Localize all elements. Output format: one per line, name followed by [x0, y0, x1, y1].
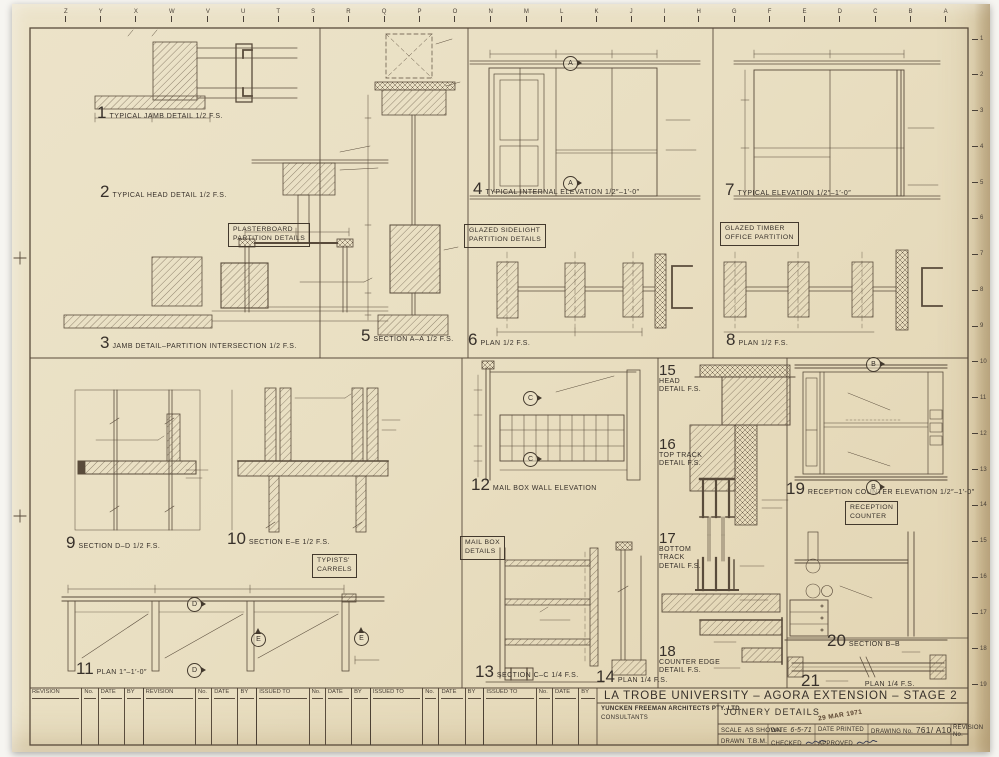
detail-number: 1	[97, 106, 106, 120]
checked-label: CHECKED	[771, 741, 802, 747]
grid-number: 3	[972, 108, 987, 114]
grid-number: 19	[972, 682, 987, 688]
scale-label: SCALE	[721, 728, 742, 734]
detail-label-15: 15HEAD DETAIL F.S.	[659, 364, 705, 395]
revision-col-header: ISSUED TO	[373, 689, 420, 699]
detail-label-2: 2TYPICAL HEAD DETAIL 1/2 F.S.	[100, 185, 227, 199]
group-box-reception: RECEPTIONCOUNTER	[845, 501, 898, 525]
group-box-line: TYPISTS'	[317, 557, 352, 566]
detail-number: 6	[468, 333, 477, 347]
grid-letter: A	[944, 9, 948, 22]
revision-no-label: REVISION No.	[953, 725, 983, 738]
group-box-sidelight: GLAZED SIDELIGHTPARTITION DETAILS	[464, 224, 546, 248]
group-box-line: GLAZED TIMBER	[725, 225, 794, 234]
revision-group: REVISION No. DATE BY	[144, 688, 258, 745]
revision-strip: REVISION No. DATE BY REVISION No. DATE B…	[30, 688, 597, 745]
detail-number: 12	[471, 478, 490, 492]
grid-letter: Q	[382, 9, 387, 22]
revision-col-header: No.	[84, 689, 95, 699]
detail-number: 10	[227, 532, 246, 546]
grid-letter: J	[630, 9, 633, 22]
grid-letter: T	[276, 9, 280, 22]
detail-number: 11	[76, 662, 94, 676]
detail-title: SECTION D–D 1/2 F.S.	[78, 543, 160, 550]
grid-number: 10	[972, 359, 987, 365]
grid-number: 1	[972, 36, 987, 42]
revision-col-header: No.	[312, 689, 323, 699]
detail-title: PLAN 1″–1′-0″	[97, 669, 147, 676]
scanned-drawing-sheet: ZYXWVUTSRQPONMLKJIHGFEDCBA 1234567891011…	[0, 0, 999, 757]
section-marker-e-left: E	[251, 632, 266, 647]
group-box-timber: GLAZED TIMBEROFFICE PARTITION	[720, 222, 799, 246]
group-box-line: CARRELS	[317, 566, 352, 575]
section-marker-c-bottom: C	[523, 452, 538, 467]
approved-field: APPROVED	[818, 738, 878, 747]
grid-numbers: 12345678910111213141516171819	[972, 36, 987, 688]
grid-number: 18	[972, 646, 987, 652]
revision-col-header: DATE	[101, 689, 122, 699]
detail-number: 4	[473, 182, 482, 196]
detail-number: 3	[100, 336, 109, 350]
detail-number: 9	[66, 536, 75, 550]
section-marker-a-top: A	[563, 56, 578, 71]
detail-title: PLAN 1/4 F.S.	[865, 681, 915, 688]
grid-number: 8	[972, 287, 987, 293]
drawn-label: DRAWN	[721, 739, 744, 745]
section-marker-d-bottom: D	[187, 663, 202, 678]
detail-title: TYPICAL INTERNAL ELEVATION 1/2″–1′-0″	[485, 189, 639, 196]
revision-group: REVISION No. DATE BY	[30, 688, 144, 745]
drawn-value: T.B.M.	[747, 738, 767, 745]
issued-to-group: ISSUED TO No. DATE BY	[484, 688, 597, 745]
grid-number: 17	[972, 610, 987, 616]
detail-label-20: 20SECTION B–B	[827, 634, 900, 648]
detail-title: SECTION A–A 1/2 F.S.	[373, 336, 453, 343]
grid-number: 2	[972, 72, 987, 78]
detail-label-9: 9SECTION D–D 1/2 F.S.	[66, 536, 160, 550]
detail-label-8: 8PLAN 1/2 F.S.	[726, 333, 788, 347]
detail-number: 2	[100, 185, 109, 199]
grid-letter: L	[560, 9, 563, 22]
grid-number: 5	[972, 180, 987, 186]
group-box-line: GLAZED SIDELIGHT	[469, 227, 541, 236]
drawing-no-value: 761/ A10	[916, 726, 952, 735]
detail-label-11: 11PLAN 1″–1′-0″	[76, 662, 147, 676]
detail-title: MAIL BOX WALL ELEVATION	[493, 485, 597, 492]
detail-number: 13	[475, 665, 494, 679]
revision-col-header: ISSUED TO	[259, 689, 306, 699]
signature-scribble	[856, 738, 878, 747]
section-marker-c-top: C	[523, 391, 538, 406]
grid-number: 7	[972, 251, 987, 257]
detail-title: TYPICAL HEAD DETAIL 1/2 F.S.	[112, 192, 226, 199]
grid-letter: F	[768, 9, 772, 22]
section-marker-d-top: D	[187, 597, 202, 612]
date-printed-field: DATE PRINTED	[818, 727, 864, 733]
date-label: DATE	[771, 728, 787, 734]
grid-number: 9	[972, 323, 987, 329]
detail-title: SECTION C–C 1/4 F.S.	[497, 672, 579, 679]
grid-letter: W	[169, 9, 175, 22]
grid-letter: N	[488, 9, 492, 22]
detail-title: COUNTER EDGE DETAIL F.S.	[659, 659, 723, 676]
grid-letter: E	[802, 9, 806, 22]
grid-letter: O	[453, 9, 458, 22]
revision-col-header: REVISION	[32, 689, 79, 699]
detail-number: 18	[659, 645, 723, 658]
drawing-no-field: DRAWING No. 761/ A10	[871, 726, 952, 735]
group-box-line: PARTITION DETAILS	[469, 236, 541, 245]
revision-col-header: DATE	[441, 689, 462, 699]
grid-letter: H	[696, 9, 700, 22]
grid-letter: C	[873, 9, 877, 22]
detail-number: 16	[659, 438, 705, 451]
detail-number: 5	[361, 329, 370, 343]
grid-letter: M	[524, 9, 529, 22]
revision-col-header: BY	[127, 689, 141, 699]
grid-number: 16	[972, 574, 987, 580]
group-box-line: PARTITION DETAILS	[233, 235, 305, 244]
grid-number: 11	[972, 395, 987, 401]
date-field: DATE 6-5-71	[771, 727, 812, 734]
grid-letter: R	[346, 9, 350, 22]
detail-title: TYPICAL ELEVATION 1/2″–1′-0″	[737, 190, 851, 197]
detail-title: PLAN 1/4 F.S.	[618, 677, 668, 684]
grid-letter: P	[418, 9, 422, 22]
detail-title: PLAN 1/2 F.S.	[738, 340, 788, 347]
date-printed-label: DATE PRINTED	[818, 727, 864, 733]
grid-letter: I	[664, 9, 666, 22]
section-marker-e-right: E	[354, 631, 369, 646]
drawing-no-label: DRAWING No.	[871, 729, 913, 735]
revision-no-field: REVISION No.	[953, 725, 967, 738]
grid-number: 13	[972, 467, 987, 473]
group-box-typists: TYPISTS'CARRELS	[312, 554, 357, 578]
grid-letter: S	[311, 9, 315, 22]
date-value: 6-5-71	[790, 727, 811, 734]
detail-title: TOP TRACK DETAIL F.S.	[659, 452, 705, 469]
detail-title: RECEPTION COUNTER ELEVATION 1/2″–1′-0″	[808, 489, 975, 496]
detail-title: PLAN 1/2 F.S.	[480, 340, 530, 347]
group-box-line: MAIL BOX	[465, 539, 500, 548]
group-box-plasterboard: PLASTERBOARDPARTITION DETAILS	[228, 223, 310, 247]
group-box-line: PLASTERBOARD	[233, 226, 305, 235]
issued-to-group: ISSUED TO No. DATE BY	[371, 688, 485, 745]
group-box-mailbox: MAIL BOXDETAILS	[460, 536, 505, 560]
project-title: LA TROBE UNIVERSITY – AGORA EXTENSION – …	[604, 690, 958, 702]
grid-letter: U	[241, 9, 245, 22]
detail-label-1: 1TYPICAL JAMB DETAIL 1/2 F.S.	[97, 106, 223, 120]
detail-title: JAMB DETAIL–PARTITION INTERSECTION 1/2 F…	[112, 343, 296, 350]
grid-letter: B	[909, 9, 913, 22]
revision-col-header: No.	[425, 689, 436, 699]
revision-col-header: BY	[354, 689, 368, 699]
revision-col-header: No.	[198, 689, 209, 699]
group-box-line: COUNTER	[850, 513, 893, 522]
revision-col-header: DATE	[555, 689, 576, 699]
revision-col-header: DATE	[214, 689, 235, 699]
grid-number: 12	[972, 431, 987, 437]
revision-col-header: No.	[539, 689, 550, 699]
detail-number: 7	[725, 183, 734, 197]
detail-number: 19	[786, 482, 805, 496]
revision-col-header: REVISION	[146, 689, 193, 699]
detail-label-12: 12MAIL BOX WALL ELEVATION	[471, 478, 597, 492]
consultants-label: CONSULTANTS	[601, 715, 648, 721]
grid-number: 4	[972, 144, 987, 150]
grid-number: 14	[972, 502, 987, 508]
detail-title: BOTTOM TRACK DETAIL F.S.	[659, 546, 711, 571]
detail-number: 15	[659, 364, 705, 377]
detail-label-3: 3JAMB DETAIL–PARTITION INTERSECTION 1/2 …	[100, 336, 297, 350]
detail-label-21: 21PLAN 1/4 F.S.	[801, 674, 915, 688]
grid-letter: V	[206, 9, 210, 22]
issued-to-group: ISSUED TO No. DATE BY	[257, 688, 371, 745]
grid-number: 6	[972, 215, 987, 221]
detail-label-4: 4TYPICAL INTERNAL ELEVATION 1/2″–1′-0″	[473, 182, 640, 196]
grid-letter: X	[134, 9, 138, 22]
grid-letter: D	[838, 9, 842, 22]
detail-number: 21	[801, 674, 820, 688]
grid-number: 15	[972, 538, 987, 544]
detail-label-10: 10SECTION E–E 1/2 F.S.	[227, 532, 330, 546]
detail-number: 8	[726, 333, 735, 347]
revision-col-header: BY	[240, 689, 254, 699]
revision-col-header: DATE	[328, 689, 349, 699]
revision-col-header: ISSUED TO	[486, 689, 533, 699]
section-marker-b-bottom: B	[866, 480, 881, 495]
grid-letter: Z	[64, 9, 68, 22]
detail-title: SECTION E–E 1/2 F.S.	[249, 539, 330, 546]
grid-letter: G	[732, 9, 737, 22]
grid-letter: Y	[99, 9, 103, 22]
section-marker-a-bottom: A	[563, 176, 578, 191]
approved-label: APPROVED	[818, 741, 853, 747]
grid-letter: K	[594, 9, 598, 22]
detail-number: 17	[659, 532, 711, 545]
detail-label-6: 6PLAN 1/2 F.S.	[468, 333, 530, 347]
revision-col-header: BY	[468, 689, 482, 699]
detail-number: 14	[596, 670, 615, 684]
drawing-title: JOINERY DETAILS	[724, 707, 820, 717]
drawn-field: DRAWN T.B.M.	[721, 738, 767, 745]
group-box-line: OFFICE PARTITION	[725, 234, 794, 243]
detail-title: TYPICAL JAMB DETAIL 1/2 F.S.	[109, 113, 222, 120]
detail-title: SECTION B–B	[849, 641, 900, 648]
architect-name: YUNCKEN FREEMAN ARCHITECTS PTY. LTD.	[601, 706, 742, 712]
detail-number: 20	[827, 634, 846, 648]
detail-label-17: 17BOTTOM TRACK DETAIL F.S.	[659, 532, 711, 571]
group-box-line: DETAILS	[465, 548, 500, 557]
grid-letters: ZYXWVUTSRQPONMLKJIHGFEDCBA	[64, 9, 948, 22]
group-box-line: RECEPTION	[850, 504, 893, 513]
revision-col-header: BY	[581, 689, 595, 699]
detail-label-14: 14PLAN 1/4 F.S.	[596, 670, 668, 684]
detail-label-18: 18COUNTER EDGE DETAIL F.S.	[659, 645, 723, 676]
detail-label-5: 5SECTION A–A 1/2 F.S.	[361, 329, 454, 343]
detail-title: HEAD DETAIL F.S.	[659, 378, 705, 395]
detail-label-13: 13SECTION C–C 1/4 F.S.	[475, 665, 579, 679]
section-marker-b-top: B	[866, 357, 881, 372]
detail-label-16: 16TOP TRACK DETAIL F.S.	[659, 438, 705, 469]
detail-label-7: 7TYPICAL ELEVATION 1/2″–1′-0″	[725, 183, 851, 197]
